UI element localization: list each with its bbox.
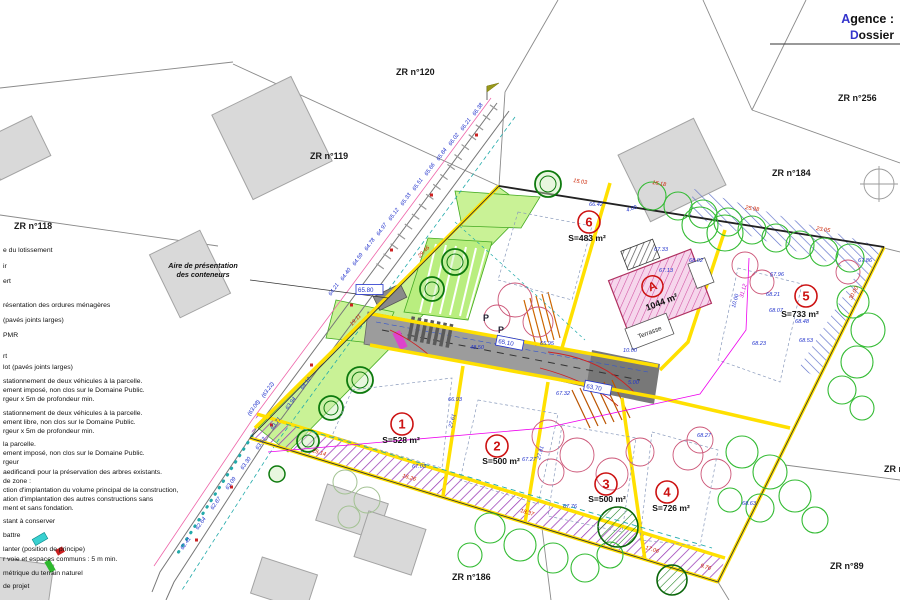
tree-hatched-icon bbox=[657, 565, 687, 595]
dim-label: 68.21 bbox=[766, 292, 780, 298]
lot-area: S=483 m² bbox=[568, 233, 606, 243]
dim-label: 68.53 bbox=[799, 338, 814, 344]
legend-line: rgeur x 5m de profondeur min. bbox=[3, 396, 95, 403]
dim-label: 67.27 bbox=[522, 457, 537, 463]
dim-label: 66.42 bbox=[589, 202, 604, 208]
legend-line: la parcelle. bbox=[3, 441, 36, 448]
dim-label: 68.07 bbox=[769, 308, 784, 314]
dim-label: 68.02 bbox=[689, 258, 704, 264]
legend-line: battre bbox=[3, 532, 21, 539]
container-note-line2: des conteneurs bbox=[176, 270, 229, 279]
legend-line: lanter (position de principe) bbox=[3, 546, 85, 553]
legend-line: rgeur bbox=[3, 459, 20, 466]
agence-label: Agence : bbox=[841, 12, 894, 26]
dim-label: 68.27 bbox=[697, 433, 712, 439]
zr-parcel-label: ZR n°118 bbox=[14, 221, 52, 231]
zr-parcel-label: ZR n°119 bbox=[310, 151, 348, 161]
tree-conserved-icon bbox=[319, 396, 343, 420]
legend-line: PMR bbox=[3, 332, 18, 339]
legend-line: métrique du terrain naturel bbox=[3, 570, 83, 577]
dim-label: 66.93 bbox=[448, 397, 463, 403]
lot-number: 4 bbox=[663, 485, 671, 500]
dim-label: 67.96 bbox=[770, 272, 785, 278]
dim-label: 5.00 bbox=[628, 380, 640, 386]
site-plan-svg: Terrasse A 1044 m² bbox=[0, 0, 900, 600]
zr-parcel-label: ZR n°120 bbox=[396, 67, 435, 77]
lot-number: 1 bbox=[398, 417, 405, 432]
container-note-line1: Aire de présentation bbox=[167, 261, 238, 270]
lot-area: S=528 m² bbox=[382, 435, 420, 445]
dim-label: 67.32 bbox=[556, 391, 571, 397]
legend-line: lot (pavés joints larges) bbox=[3, 364, 73, 371]
dim-label: 68.48 bbox=[795, 319, 810, 325]
lot-number: 5 bbox=[802, 289, 809, 304]
lot-number: 6 bbox=[585, 215, 592, 230]
legend-line: ement imposé, non clos sur le Domaine Pu… bbox=[3, 450, 145, 457]
dim-label: 67.76 bbox=[563, 504, 578, 510]
dim-label: 67.13 bbox=[659, 268, 674, 274]
zr-parcel-label: ZR n°89 bbox=[830, 561, 864, 571]
legend-line: rt bbox=[3, 353, 7, 360]
tree-hatched-icon bbox=[598, 507, 638, 547]
legend-line: résentation des ordures ménagères bbox=[3, 302, 111, 309]
parking-label: P bbox=[498, 325, 504, 335]
legend-line: stationnement de deux véhicules à la par… bbox=[3, 410, 143, 417]
legend-line: ction d'implantation du volume principal… bbox=[3, 487, 179, 494]
dim-label: 67.86 bbox=[858, 258, 873, 264]
dim-label: 67.03 bbox=[412, 464, 427, 470]
zr-parcel-label: ZR n°256 bbox=[838, 93, 877, 103]
dim-label: 68.63 bbox=[742, 501, 757, 507]
lot-area: S=726 m² bbox=[652, 503, 690, 513]
lot-number: 2 bbox=[493, 439, 500, 454]
lot-area: S=733 m² bbox=[781, 309, 819, 319]
legend-line: de zone : bbox=[3, 478, 31, 485]
legend-line: rgeur x 5m de profondeur min. bbox=[3, 428, 95, 435]
tree-conserved-icon bbox=[442, 249, 468, 275]
lot-number: 3 bbox=[602, 477, 609, 492]
legend-line: ert bbox=[3, 278, 11, 285]
lot-area: S=500 m² bbox=[482, 456, 520, 466]
legend-line: ation d'implantation des autres construc… bbox=[3, 496, 154, 503]
tree-conserved-icon bbox=[535, 171, 561, 197]
level-box: 65.80 bbox=[356, 285, 383, 295]
legend-line: stant à conserver bbox=[3, 518, 56, 525]
legend-line: (pavés joints larges) bbox=[3, 317, 64, 324]
legend-line: aedificandi pour la préservation des arb… bbox=[3, 469, 162, 476]
parking-label: P bbox=[483, 313, 489, 323]
site-plan-page: Terrasse A 1044 m² bbox=[0, 0, 900, 600]
zr-parcel-label: ZR n°44 bbox=[884, 464, 900, 474]
legend-line: ment et sans fondation. bbox=[3, 505, 74, 512]
legend-line: de projet bbox=[3, 583, 30, 590]
legend-line: stationnement de deux véhicules à la par… bbox=[3, 378, 143, 385]
dim-label: 67.33 bbox=[654, 247, 669, 253]
dim-label: 48.50 bbox=[470, 345, 485, 351]
dim-label: 10.00 bbox=[623, 348, 638, 354]
legend-line: ement libre, non clos sur le Domaine Pub… bbox=[3, 419, 136, 426]
dim-label: 68.23 bbox=[752, 341, 767, 347]
tree-conserved-icon bbox=[420, 277, 444, 301]
tree-conserved-icon bbox=[269, 466, 285, 482]
level-value: 65.80 bbox=[358, 287, 374, 294]
lot-area: S=500 m² bbox=[588, 494, 626, 504]
zr-parcel-label: ZR n°186 bbox=[452, 572, 491, 582]
legend-line: ement imposé, non clos sur le Domaine Pu… bbox=[3, 387, 145, 394]
dossier-label: Dossier bbox=[850, 28, 894, 42]
legend-line: e du lotissement bbox=[3, 247, 53, 254]
zr-parcel-label: ZR n°184 bbox=[772, 168, 811, 178]
container-note: Aire de présentationdes conteneurs bbox=[167, 261, 238, 279]
legend-line: r voie et espaces communs : 5 m min. bbox=[3, 556, 118, 563]
dim-label: 65.95 bbox=[540, 341, 555, 347]
